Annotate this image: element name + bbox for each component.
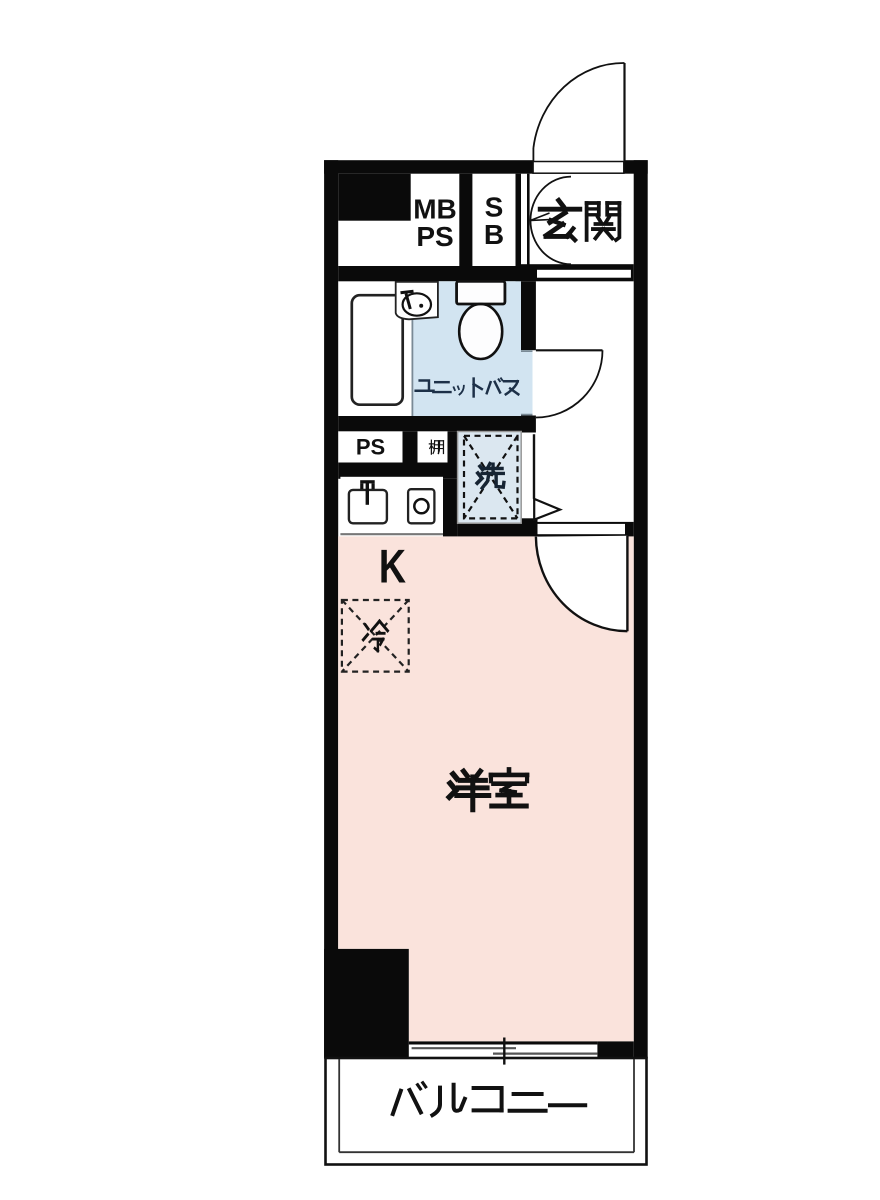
svg-text:B: B xyxy=(484,219,504,250)
svg-text:PS: PS xyxy=(356,435,385,460)
svg-text:S: S xyxy=(485,192,504,223)
svg-text:K: K xyxy=(379,541,406,594)
svg-text:MB: MB xyxy=(413,194,457,225)
svg-text:PS: PS xyxy=(416,221,453,252)
